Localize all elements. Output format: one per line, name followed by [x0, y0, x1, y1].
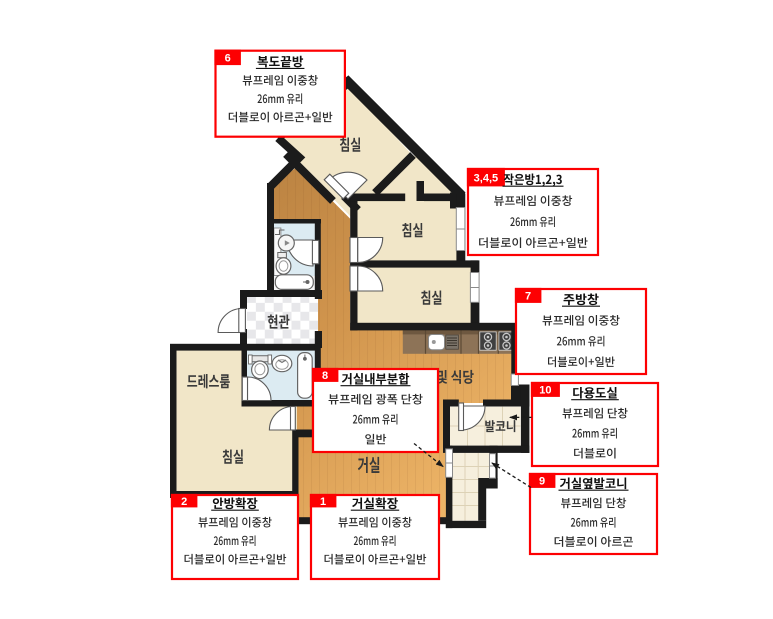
svg-text:2: 2 — [181, 496, 187, 508]
svg-text:7: 7 — [525, 291, 531, 303]
svg-text:1: 1 — [320, 496, 326, 508]
svg-text:8: 8 — [322, 370, 328, 382]
svg-text:3,4,5: 3,4,5 — [474, 172, 498, 184]
svg-text:6: 6 — [225, 53, 231, 65]
svg-text:9: 9 — [539, 476, 545, 488]
svg-text:10: 10 — [539, 385, 551, 397]
